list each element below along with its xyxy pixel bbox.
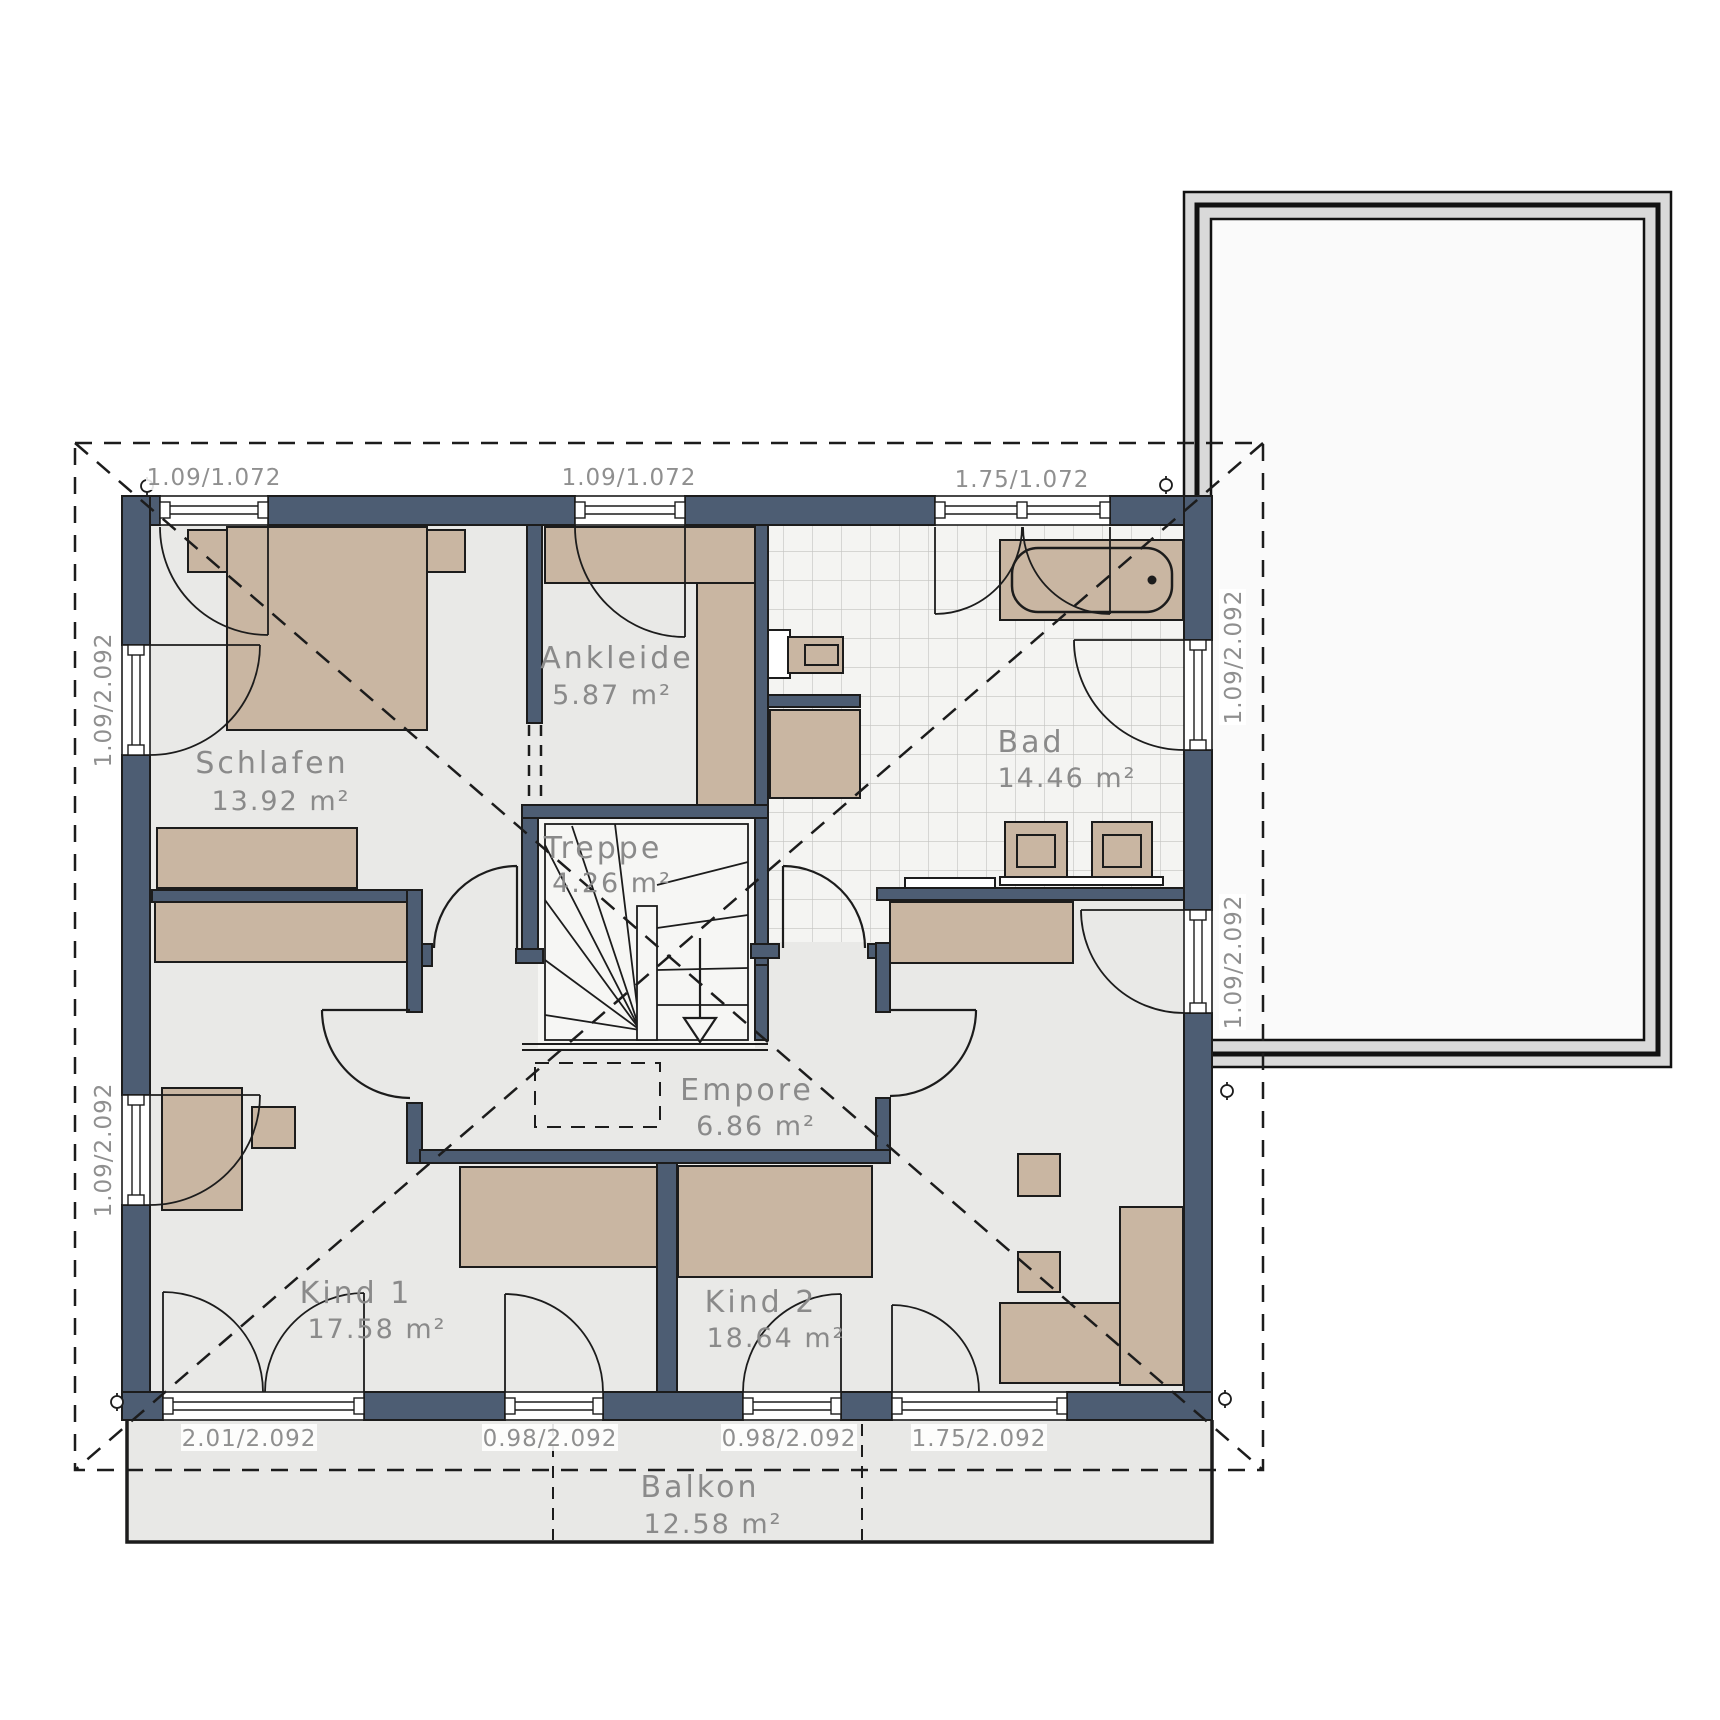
room-area-empore: 6.86 m² bbox=[696, 1111, 816, 1142]
flat-roof-deck bbox=[1184, 192, 1671, 1067]
window-left-2 bbox=[122, 1095, 150, 1205]
room-label-empore: Empore bbox=[680, 1073, 814, 1108]
cistern bbox=[766, 630, 790, 678]
room-area-kind2: 18.64 m² bbox=[706, 1323, 845, 1354]
room-area-bad: 14.46 m² bbox=[997, 763, 1136, 794]
bed bbox=[460, 1167, 657, 1267]
svg-text:1.75/2.092: 1.75/2.092 bbox=[912, 1426, 1047, 1452]
dim-left-2: 1.09/2.092 bbox=[89, 1082, 117, 1218]
room-label-treppe: Treppe bbox=[543, 831, 663, 866]
window-right-2 bbox=[1184, 910, 1212, 1013]
room-label-kind2: Kind 2 bbox=[705, 1285, 818, 1320]
window-top-1 bbox=[160, 496, 268, 525]
dim-right-1: 1.09/2.092 bbox=[1219, 589, 1247, 725]
room-label-schlafen: Schlafen bbox=[195, 746, 348, 781]
room-label-kind1: Kind 1 bbox=[300, 1276, 413, 1311]
room-area-balkon: 12.58 m² bbox=[643, 1509, 782, 1540]
chair bbox=[1018, 1252, 1060, 1292]
dim-right-2: 1.09/2.092 bbox=[1219, 894, 1247, 1030]
svg-text:1.09/1.072: 1.09/1.072 bbox=[147, 465, 282, 491]
dim-top-2: 1.09/1.072 bbox=[561, 463, 697, 491]
wardrobe bbox=[890, 902, 1073, 963]
window-bottom-4 bbox=[892, 1392, 1067, 1420]
nightstand bbox=[188, 530, 227, 572]
room-label-ankleide: Ankleide bbox=[540, 641, 694, 676]
wardrobe bbox=[545, 527, 755, 583]
dim-top-3: 1.75/1.072 bbox=[954, 465, 1090, 493]
room-label-bad: Bad bbox=[997, 725, 1064, 760]
svg-text:0.98/2.092: 0.98/2.092 bbox=[483, 1426, 618, 1452]
shower bbox=[770, 710, 860, 798]
desk bbox=[1000, 1303, 1120, 1383]
radiator bbox=[905, 878, 995, 888]
dim-bottom-3: 0.98/2.092 bbox=[721, 1424, 857, 1452]
svg-text:1.09/2.092: 1.09/2.092 bbox=[1221, 590, 1247, 725]
floor-plan-drawing: Schlafen 13.92 m² Ankleide 5.87 m² Bad 1… bbox=[0, 0, 1720, 1720]
window-bottom-2 bbox=[505, 1392, 603, 1420]
room-area-treppe: 4.26 m² bbox=[552, 868, 672, 899]
dim-bottom-1: 2.01/2.092 bbox=[181, 1424, 317, 1452]
vanity-counter bbox=[1000, 877, 1163, 885]
wardrobe bbox=[155, 902, 407, 962]
washbasin-bowl bbox=[1103, 835, 1141, 867]
window-left-1 bbox=[122, 645, 150, 755]
dresser bbox=[157, 828, 357, 888]
toilet-seat bbox=[805, 645, 838, 665]
svg-text:0.98/2.092: 0.98/2.092 bbox=[722, 1426, 857, 1452]
nightstand bbox=[427, 530, 465, 572]
svg-text:1.09/2.092: 1.09/2.092 bbox=[91, 1083, 117, 1218]
window-bottom-3 bbox=[743, 1392, 841, 1420]
marker-icon bbox=[1160, 476, 1172, 494]
svg-text:1.09/1.072: 1.09/1.072 bbox=[562, 465, 697, 491]
window-top-3 bbox=[935, 496, 1110, 525]
dim-left-1: 1.09/2.092 bbox=[89, 632, 117, 768]
svg-text:1.09/2.092: 1.09/2.092 bbox=[91, 633, 117, 768]
wardrobe bbox=[697, 583, 755, 805]
svg-text:1.09/2.092: 1.09/2.092 bbox=[1221, 895, 1247, 1030]
dim-top-1: 1.09/1.072 bbox=[146, 463, 282, 491]
bathtub-drain bbox=[1148, 576, 1157, 585]
room-area-ankleide: 5.87 m² bbox=[552, 680, 672, 711]
room-area-kind1: 17.58 m² bbox=[307, 1314, 446, 1345]
window-bottom-1 bbox=[163, 1392, 364, 1420]
room-area-schlafen: 13.92 m² bbox=[211, 786, 350, 817]
window-top-2 bbox=[575, 496, 685, 525]
desk bbox=[1120, 1207, 1183, 1385]
svg-text:2.01/2.092: 2.01/2.092 bbox=[182, 1426, 317, 1452]
bed bbox=[678, 1166, 872, 1277]
dim-bottom-4: 1.75/2.092 bbox=[911, 1424, 1047, 1452]
floor-plan-page: Schlafen 13.92 m² Ankleide 5.87 m² Bad 1… bbox=[0, 0, 1720, 1720]
double-bed bbox=[227, 527, 427, 730]
washbasin-bowl bbox=[1017, 835, 1055, 867]
dim-bottom-2: 0.98/2.092 bbox=[482, 1424, 618, 1452]
marker-icon bbox=[1221, 1082, 1233, 1100]
marker-icon bbox=[1219, 1390, 1231, 1408]
room-label-balkon: Balkon bbox=[641, 1470, 760, 1505]
side-table bbox=[1018, 1154, 1060, 1196]
window-right-1 bbox=[1184, 640, 1212, 750]
svg-text:1.75/1.072: 1.75/1.072 bbox=[955, 467, 1090, 493]
